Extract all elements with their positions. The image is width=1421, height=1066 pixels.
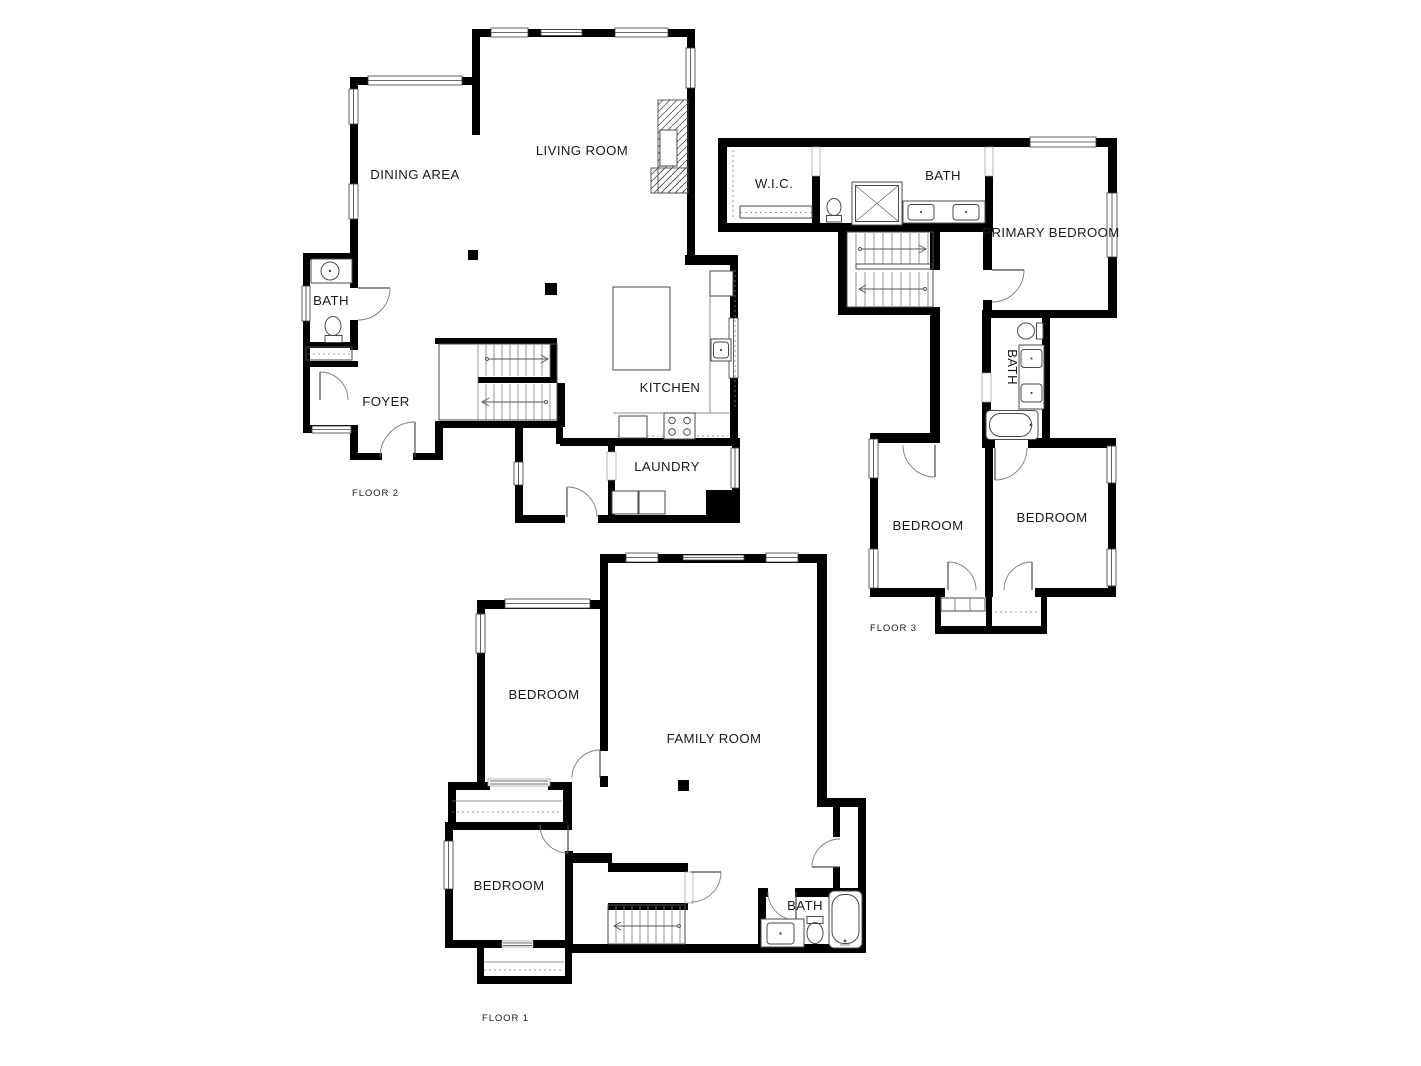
dryer-icon	[639, 491, 665, 514]
room-label-bedroom-f3-east: BEDROOM	[1017, 510, 1088, 525]
room-label-primary-bedroom: PRIMARY BEDROOM	[982, 225, 1119, 240]
room-label-family-room: FAMILY ROOM	[667, 731, 762, 746]
washer-icon	[612, 491, 638, 514]
room-label-living-room: LIVING ROOM	[536, 143, 628, 158]
room-label-bedroom-f3-west: BEDROOM	[893, 518, 964, 533]
bath-vanity	[311, 259, 352, 283]
room-label-wic: W.I.C.	[755, 176, 793, 191]
toilet-icon	[807, 917, 823, 944]
shower-icon	[852, 182, 902, 225]
room-label-bedroom-f1-upper: BEDROOM	[509, 687, 580, 702]
linen-closet	[306, 347, 352, 360]
toilet-icon	[1018, 323, 1044, 339]
room-label-kitchen: KITCHEN	[640, 380, 701, 395]
water-heater-icon	[706, 490, 740, 517]
staircase	[608, 905, 685, 944]
fridge-icon	[710, 271, 733, 296]
floor-plan-page: DINING AREA LIVING ROOM BATH FOYER KITCH…	[0, 0, 1421, 1066]
floor-3-label: FLOOR 3	[870, 623, 917, 634]
bathtub-icon	[986, 411, 1038, 440]
room-label-bath-f1: BATH	[787, 898, 823, 913]
room-label-bath-f3-hall: BATH	[1005, 349, 1020, 385]
double-vanity	[1019, 345, 1044, 409]
toilet-icon	[827, 199, 842, 223]
room-label-bath-f2: BATH	[313, 293, 349, 308]
floor-2-label: FLOOR 2	[352, 488, 399, 499]
column-post	[545, 283, 557, 295]
floor-1-label: FLOOR 1	[482, 1013, 529, 1024]
stove-icon	[664, 413, 695, 439]
room-label-bedroom-f1-lower: BEDROOM	[474, 878, 545, 893]
room-label-laundry: LAUNDRY	[634, 459, 700, 474]
bathtub-icon	[829, 891, 862, 948]
double-vanity	[903, 201, 985, 223]
fireplace	[651, 100, 688, 193]
room-label-foyer: FOYER	[362, 394, 409, 409]
room-label-dining-area: DINING AREA	[370, 167, 459, 182]
kitchen-sink-icon	[711, 339, 731, 361]
floor-2-plan: DINING AREA LIVING ROOM BATH FOYER KITCH…	[302, 28, 740, 523]
toilet-icon	[325, 317, 342, 343]
floor-1-plan: BEDROOM FAMILY ROOM BEDROOM BATH FLOOR 1	[444, 553, 866, 1024]
kitchen-island	[613, 287, 670, 370]
staircase	[847, 232, 933, 307]
dishwasher-icon	[619, 416, 647, 438]
column-post	[468, 250, 478, 260]
bath-vanity	[761, 919, 804, 947]
column-post	[678, 780, 689, 791]
floor-plan-canvas: DINING AREA LIVING ROOM BATH FOYER KITCH…	[0, 0, 1421, 1066]
room-label-bath-f3-upper: BATH	[925, 168, 961, 183]
